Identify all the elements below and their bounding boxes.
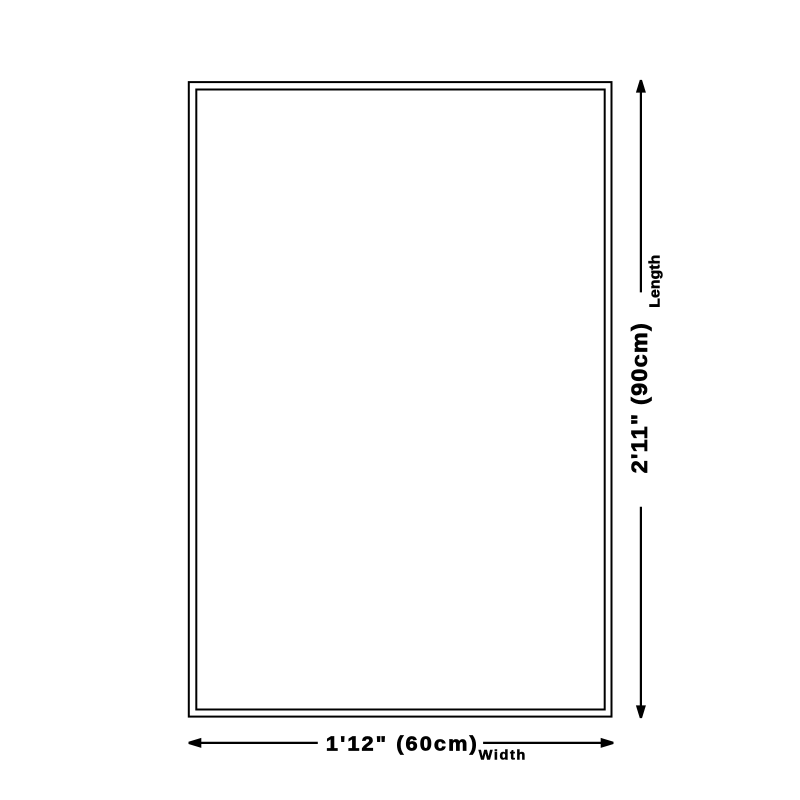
svg-text:Width: Width xyxy=(479,748,527,764)
svg-text:Length: Length xyxy=(647,255,664,308)
svg-text:1'12" (60cm): 1'12" (60cm) xyxy=(326,733,479,755)
svg-text:2'11" (90cm): 2'11" (90cm) xyxy=(627,322,652,473)
